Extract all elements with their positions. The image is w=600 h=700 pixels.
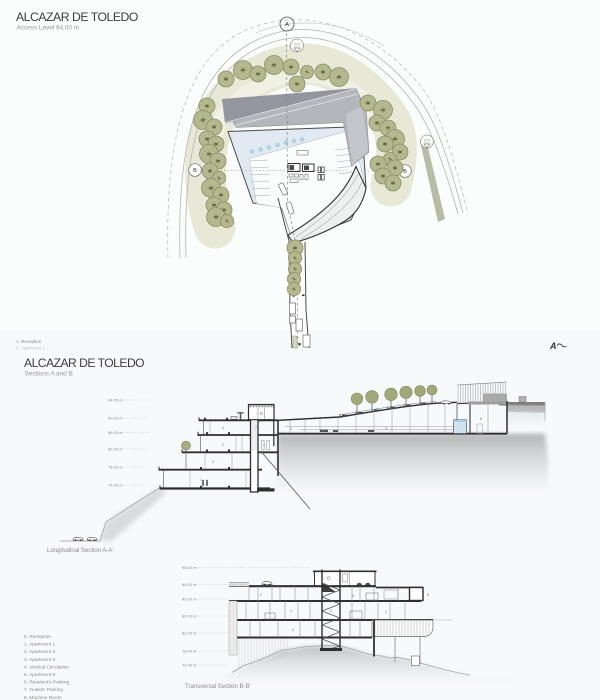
svg-text:82.00 m: 82.00 m xyxy=(182,631,197,636)
svg-text:5: 5 xyxy=(385,427,387,431)
svg-text:8: 8 xyxy=(427,593,429,597)
svg-text:6. Resident's Parking: 6. Resident's Parking xyxy=(24,680,70,686)
svg-text:B: B xyxy=(403,169,407,175)
svg-text:Longitudinal Section A-A': Longitudinal Section A-A' xyxy=(47,548,114,554)
svg-text:ALCAZAR DE TOLEDO: ALCAZAR DE TOLEDO xyxy=(24,356,144,370)
svg-text:Transversal Section B-B': Transversal Section B-B' xyxy=(185,684,251,690)
svg-text:2: 2 xyxy=(260,593,262,597)
svg-text:2: 2 xyxy=(222,443,224,447)
svg-text:94.00 m: 94.00 m xyxy=(182,582,197,587)
svg-text:1: 1 xyxy=(290,609,292,613)
svg-text:5: 5 xyxy=(292,628,294,632)
svg-text:78.00 m: 78.00 m xyxy=(108,465,123,470)
svg-text:A: A xyxy=(285,22,289,28)
svg-text:90.00 m: 90.00 m xyxy=(182,597,197,602)
svg-text:ALCAZAR DE TOLEDO: ALCAZAR DE TOLEDO xyxy=(16,10,138,24)
svg-text:6: 6 xyxy=(352,594,354,598)
svg-text:2. Apartment 2: 2. Apartment 2 xyxy=(24,649,56,655)
svg-text:4. Vertical Circulation: 4. Vertical Circulation xyxy=(24,664,69,670)
svg-text:7. Guests' Parking: 7. Guests' Parking xyxy=(24,687,63,693)
svg-text:3: 3 xyxy=(385,610,387,614)
svg-text:0: 0 xyxy=(222,426,224,430)
svg-text:1: 1 xyxy=(200,478,202,482)
svg-text:3: 3 xyxy=(212,460,214,464)
svg-text:82.00 m: 82.00 m xyxy=(108,447,123,452)
svg-text:90.00 m: 90.00 m xyxy=(108,416,123,421)
svg-text:7: 7 xyxy=(313,572,315,576)
svg-text:1. Reception: 1. Reception xyxy=(16,339,42,344)
svg-text:2. Apartment 1: 2. Apartment 1 xyxy=(16,346,46,351)
svg-text:4: 4 xyxy=(263,443,265,447)
svg-text:98.00 m: 98.00 m xyxy=(182,565,197,570)
svg-text:level: level xyxy=(425,142,430,145)
svg-text:5. Apartment 5: 5. Apartment 5 xyxy=(24,672,56,678)
svg-text:74.00 m: 74.00 m xyxy=(108,483,123,488)
svg-text:Access Level 94,00 m: Access Level 94,00 m xyxy=(17,25,80,32)
svg-text:6: 6 xyxy=(290,427,292,431)
svg-text:7: 7 xyxy=(255,426,257,430)
svg-text:94.00 m: 94.00 m xyxy=(108,398,123,403)
svg-text:3. Apartment 3: 3. Apartment 3 xyxy=(24,657,56,663)
svg-text:Sections A and B: Sections A and B xyxy=(25,371,74,378)
svg-text:74.00 m: 74.00 m xyxy=(182,663,197,668)
svg-text:0. Reception: 0. Reception xyxy=(24,634,51,640)
svg-text:B: B xyxy=(193,168,197,174)
svg-text:1. Apartment 1: 1. Apartment 1 xyxy=(24,642,56,648)
svg-text:8. Machine Room: 8. Machine Room xyxy=(24,695,62,700)
svg-text:86.00 m: 86.00 m xyxy=(108,430,123,435)
svg-text:86.00 m: 86.00 m xyxy=(182,614,197,619)
svg-text:8: 8 xyxy=(480,417,482,421)
svg-text:4: 4 xyxy=(330,609,332,613)
svg-text:level: level xyxy=(295,46,300,49)
svg-text:A: A xyxy=(549,341,557,351)
svg-text:78.00 m: 78.00 m xyxy=(182,649,197,654)
